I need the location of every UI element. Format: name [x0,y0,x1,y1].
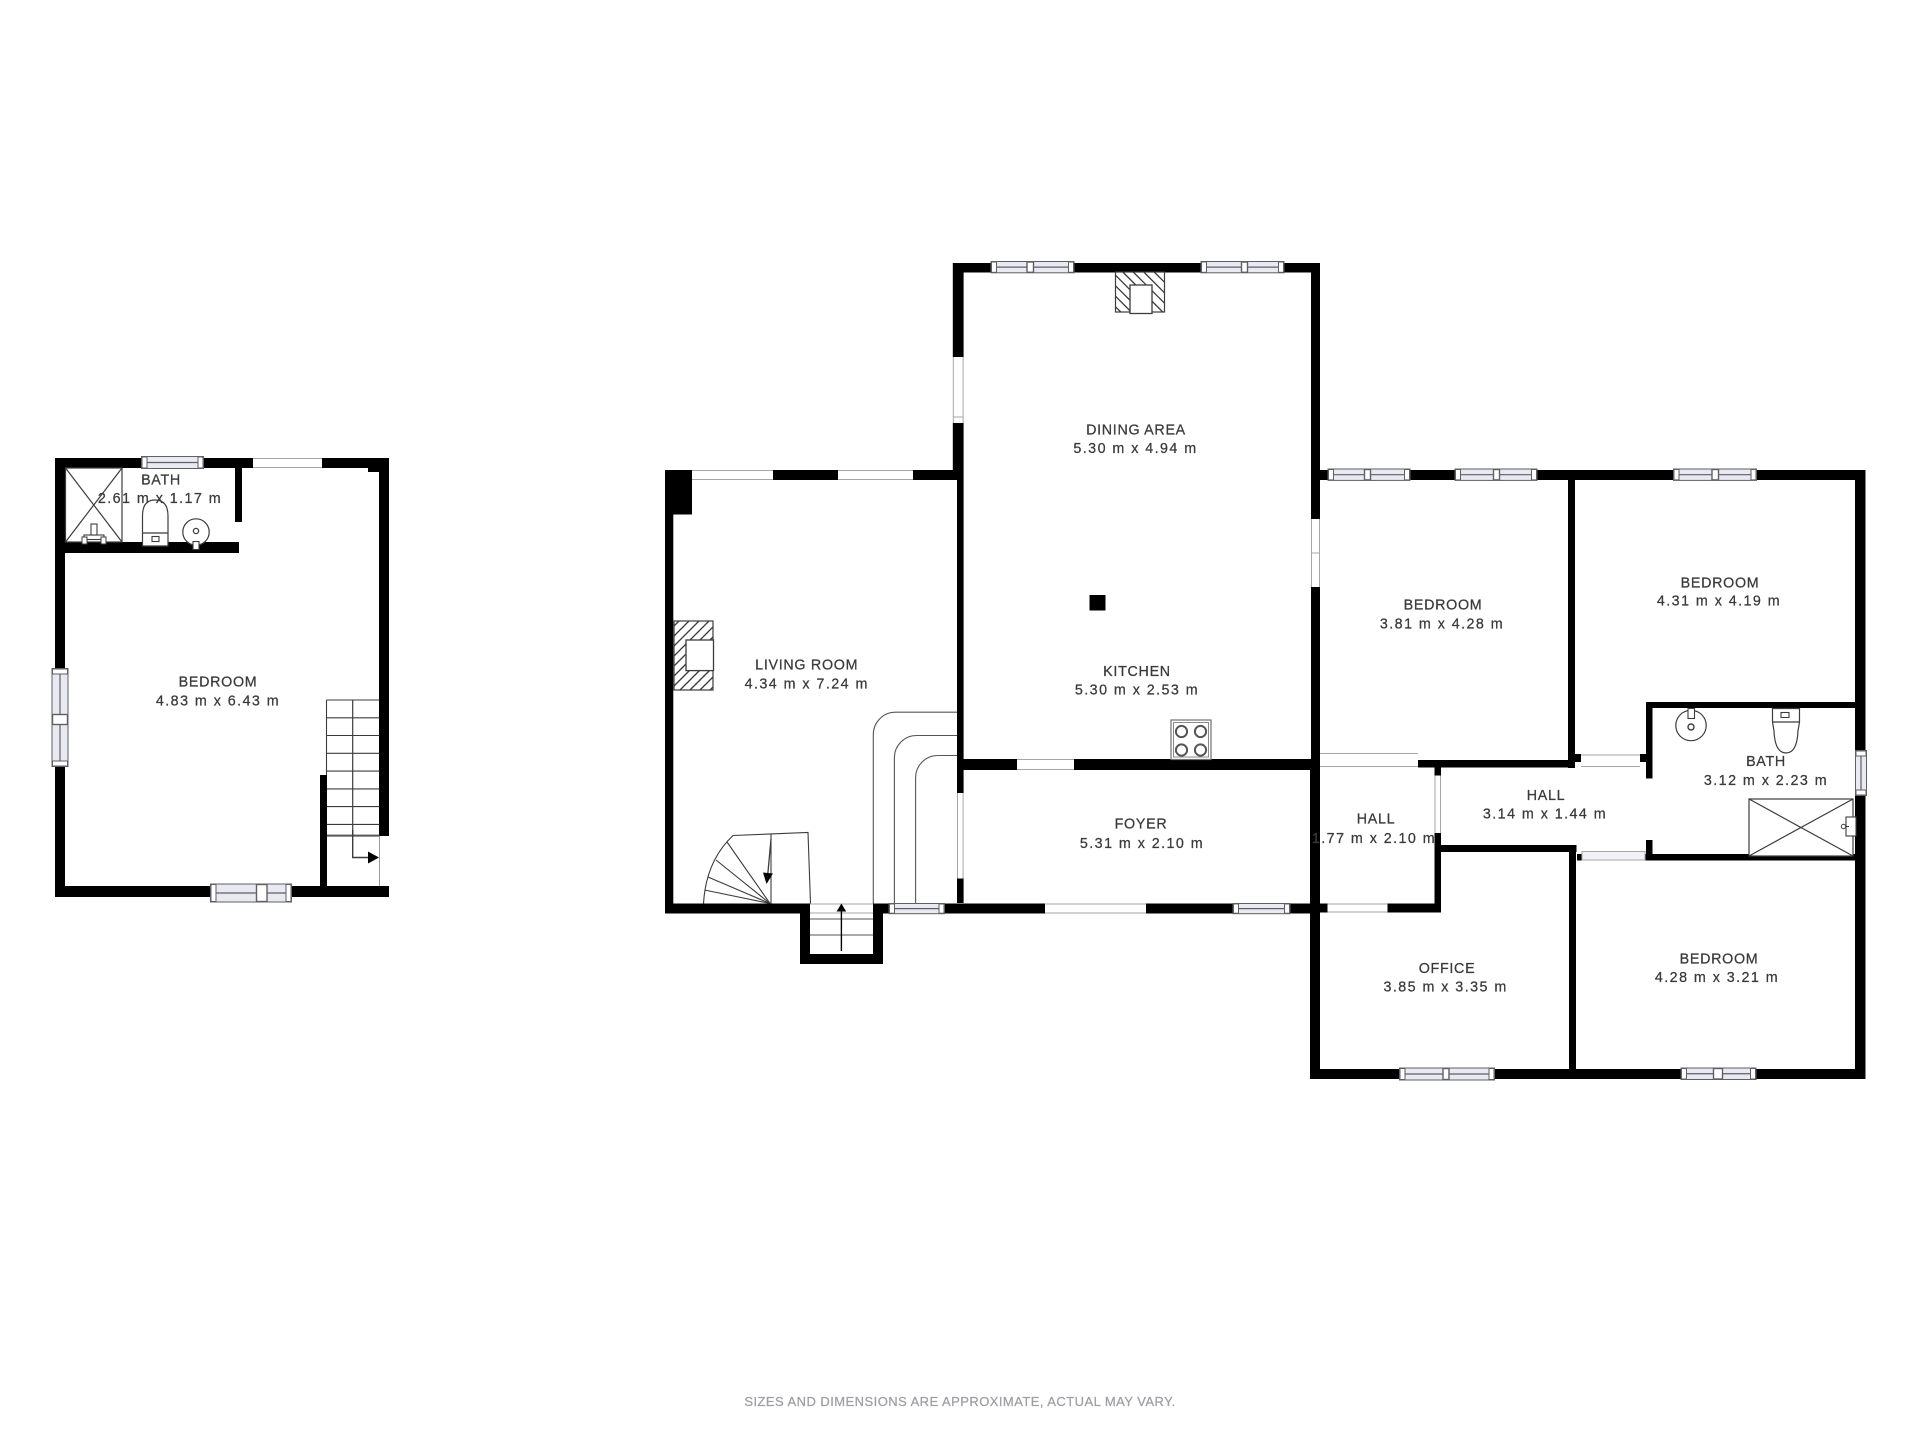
svg-text:2.61 m x 1.17 m: 2.61 m x 1.17 m [98,491,222,507]
svg-text:HALL: HALL [1527,788,1566,804]
svg-text:5.31 m x 2.10 m: 5.31 m x 2.10 m [1080,836,1204,852]
svg-text:4.31 m x 4.19 m: 4.31 m x 4.19 m [1657,594,1781,610]
svg-text:OFFICE: OFFICE [1419,961,1476,977]
svg-text:BATH: BATH [141,472,181,488]
svg-text:BEDROOM: BEDROOM [179,675,258,691]
svg-text:3.85 m x 3.35 m: 3.85 m x 3.35 m [1383,980,1507,996]
svg-text:BEDROOM: BEDROOM [1680,952,1759,968]
svg-text:BEDROOM: BEDROOM [1681,575,1760,591]
svg-text:LIVING ROOM: LIVING ROOM [755,658,858,674]
svg-text:3.81 m x 4.28 m: 3.81 m x 4.28 m [1380,616,1504,632]
svg-text:4.83 m x 6.43 m: 4.83 m x 6.43 m [156,693,280,709]
svg-text:BEDROOM: BEDROOM [1404,598,1483,614]
svg-text:5.30 m x 2.53 m: 5.30 m x 2.53 m [1075,683,1199,699]
svg-text:HALL: HALL [1357,812,1396,828]
svg-text:3.12 m x 2.23 m: 3.12 m x 2.23 m [1704,773,1828,789]
svg-text:SIZES AND DIMENSIONS ARE APPRO: SIZES AND DIMENSIONS ARE APPROXIMATE, AC… [744,1394,1175,1409]
svg-text:DINING AREA: DINING AREA [1086,422,1186,438]
svg-text:4.28 m x 3.21 m: 4.28 m x 3.21 m [1655,970,1779,986]
svg-text:BATH: BATH [1746,754,1786,770]
svg-text:4.34 m x 7.24 m: 4.34 m x 7.24 m [745,677,869,693]
svg-text:5.30 m x 4.94 m: 5.30 m x 4.94 m [1073,441,1197,457]
svg-text:KITCHEN: KITCHEN [1103,664,1171,680]
svg-text:3.14 m x 1.44 m: 3.14 m x 1.44 m [1483,807,1607,823]
svg-text:FOYER: FOYER [1115,816,1168,832]
svg-text:1.77 m x 2.10 m: 1.77 m x 2.10 m [1312,831,1436,847]
